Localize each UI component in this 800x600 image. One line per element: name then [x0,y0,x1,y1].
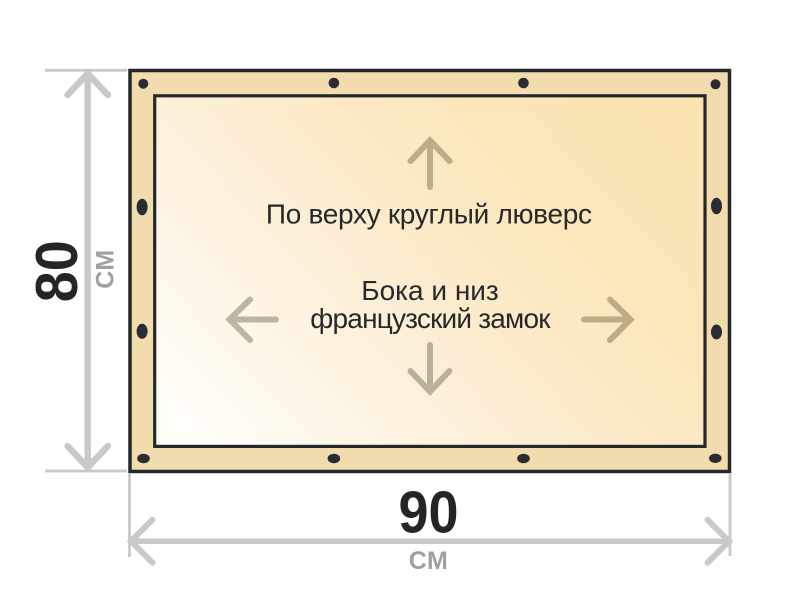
svg-text:80: 80 [23,240,90,302]
svg-text:французский замок: французский замок [310,303,551,334]
svg-text:Бока и низ: Бока и низ [361,275,499,306]
svg-text:СМ: СМ [92,249,120,289]
svg-text:СМ: СМ [409,547,449,575]
svg-text:По верху круглый люверс: По верху круглый люверс [266,199,592,230]
svg-text:90: 90 [399,479,459,546]
